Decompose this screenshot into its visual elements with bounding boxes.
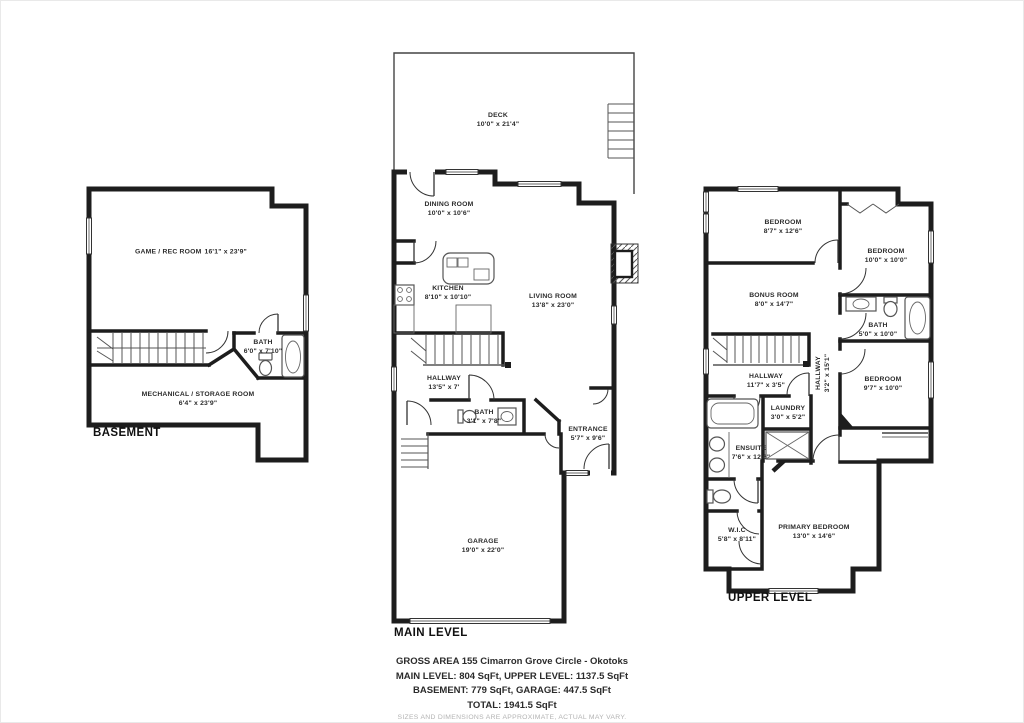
room-label-dining: DINING ROOM10'0" x 10'6" — [424, 200, 473, 218]
bathtub — [905, 297, 930, 339]
sink — [710, 458, 725, 472]
toilet — [707, 490, 713, 503]
room-label-kitchen: KITCHEN8'10" x 10'10" — [425, 284, 472, 302]
room-label-upper-bath: BATH5'0" x 10'0" — [859, 321, 898, 339]
room-label-mechanical: MECHANICAL / STORAGE ROOM6'4" x 23'9" — [142, 390, 255, 408]
bifold-closet-doors — [847, 204, 899, 213]
floor-plan-canvas — [1, 1, 1024, 723]
sink — [710, 437, 725, 451]
room-label-ensuite: ENSUITE7'6" x 12'6" — [732, 444, 771, 462]
room-label-living: LIVING ROOM13'8" x 23'0" — [529, 292, 577, 310]
basement-garage-area-line: BASEMENT: 779 SqFt, GARAGE: 447.5 SqFt — [1, 684, 1023, 699]
washer-dryer — [766, 432, 809, 459]
room-label-basement-bath: BATH6'0" x 7'10" — [244, 338, 283, 356]
toilet — [458, 410, 463, 423]
area-summary: GROSS AREA 155 Cimarron Grove Circle - O… — [1, 655, 1023, 723]
basement-stairs — [97, 333, 206, 363]
room-label-main-hallway: HALLWAY13'5" x 7' — [427, 374, 461, 392]
room-label-wic: W.I.C5'8" x 8'11" — [718, 526, 756, 544]
floor-plan-page: GAME / REC ROOM16'1" x 23'9" BATH6'0" x … — [0, 0, 1024, 723]
deck-stairs — [608, 104, 634, 158]
main-stairs — [411, 335, 505, 365]
room-label-upper-hallway: HALLWAY11'7" x 3'5" — [747, 372, 785, 390]
main-level-label: MAIN LEVEL — [394, 627, 468, 639]
main-upper-area-line: MAIN LEVEL: 804 SqFt, UPPER LEVEL: 1137.… — [1, 670, 1023, 685]
stairs-to-basement — [401, 432, 428, 469]
room-label-bonus-room: BONUS ROOM8'0" x 14'7" — [749, 291, 799, 309]
fireplace — [611, 244, 638, 283]
room-label-bedroom-1: BEDROOM8'7" x 12'6" — [764, 218, 803, 236]
room-label-main-bath: BATH3'1" x 7'8" — [467, 408, 502, 426]
disclaimer-text: SIZES AND DIMENSIONS ARE APPROXIMATE, AC… — [1, 713, 1023, 723]
room-label-laundry: LAUNDRY3'0" x 5'2" — [771, 404, 806, 422]
basement-outer-wall — [89, 189, 306, 460]
room-label-game-rec: GAME / REC ROOM16'1" x 23'9" — [135, 247, 247, 256]
room-label-bedroom-3: BEDROOM9'7" x 10'0" — [864, 375, 903, 393]
room-label-primary-bedroom: PRIMARY BEDROOM13'0" x 14'6" — [778, 523, 849, 541]
gross-area-line: GROSS AREA 155 Cimarron Grove Circle - O… — [1, 655, 1023, 670]
main-level-plan — [392, 53, 639, 624]
upper-stairs — [713, 336, 809, 365]
room-label-entrance: ENTRANCE5'7" x 9'6" — [568, 425, 607, 443]
total-area-line: TOTAL: 1941.5 SqFt — [1, 699, 1023, 714]
room-label-bedroom-2: BEDROOM10'0" x 10'0" — [865, 247, 908, 265]
upper-level-label: UPPER LEVEL — [728, 592, 812, 604]
room-label-upper-hallway-vertical: HALLWAY3'2" x 15'1" — [814, 354, 832, 393]
room-label-deck: DECK10'0" x 21'4" — [477, 111, 520, 129]
basement-level-label: BASEMENT — [93, 427, 161, 439]
stove — [395, 285, 414, 305]
room-label-garage: GARAGE19'0" x 22'0" — [462, 537, 505, 555]
basement-plan — [87, 189, 309, 460]
